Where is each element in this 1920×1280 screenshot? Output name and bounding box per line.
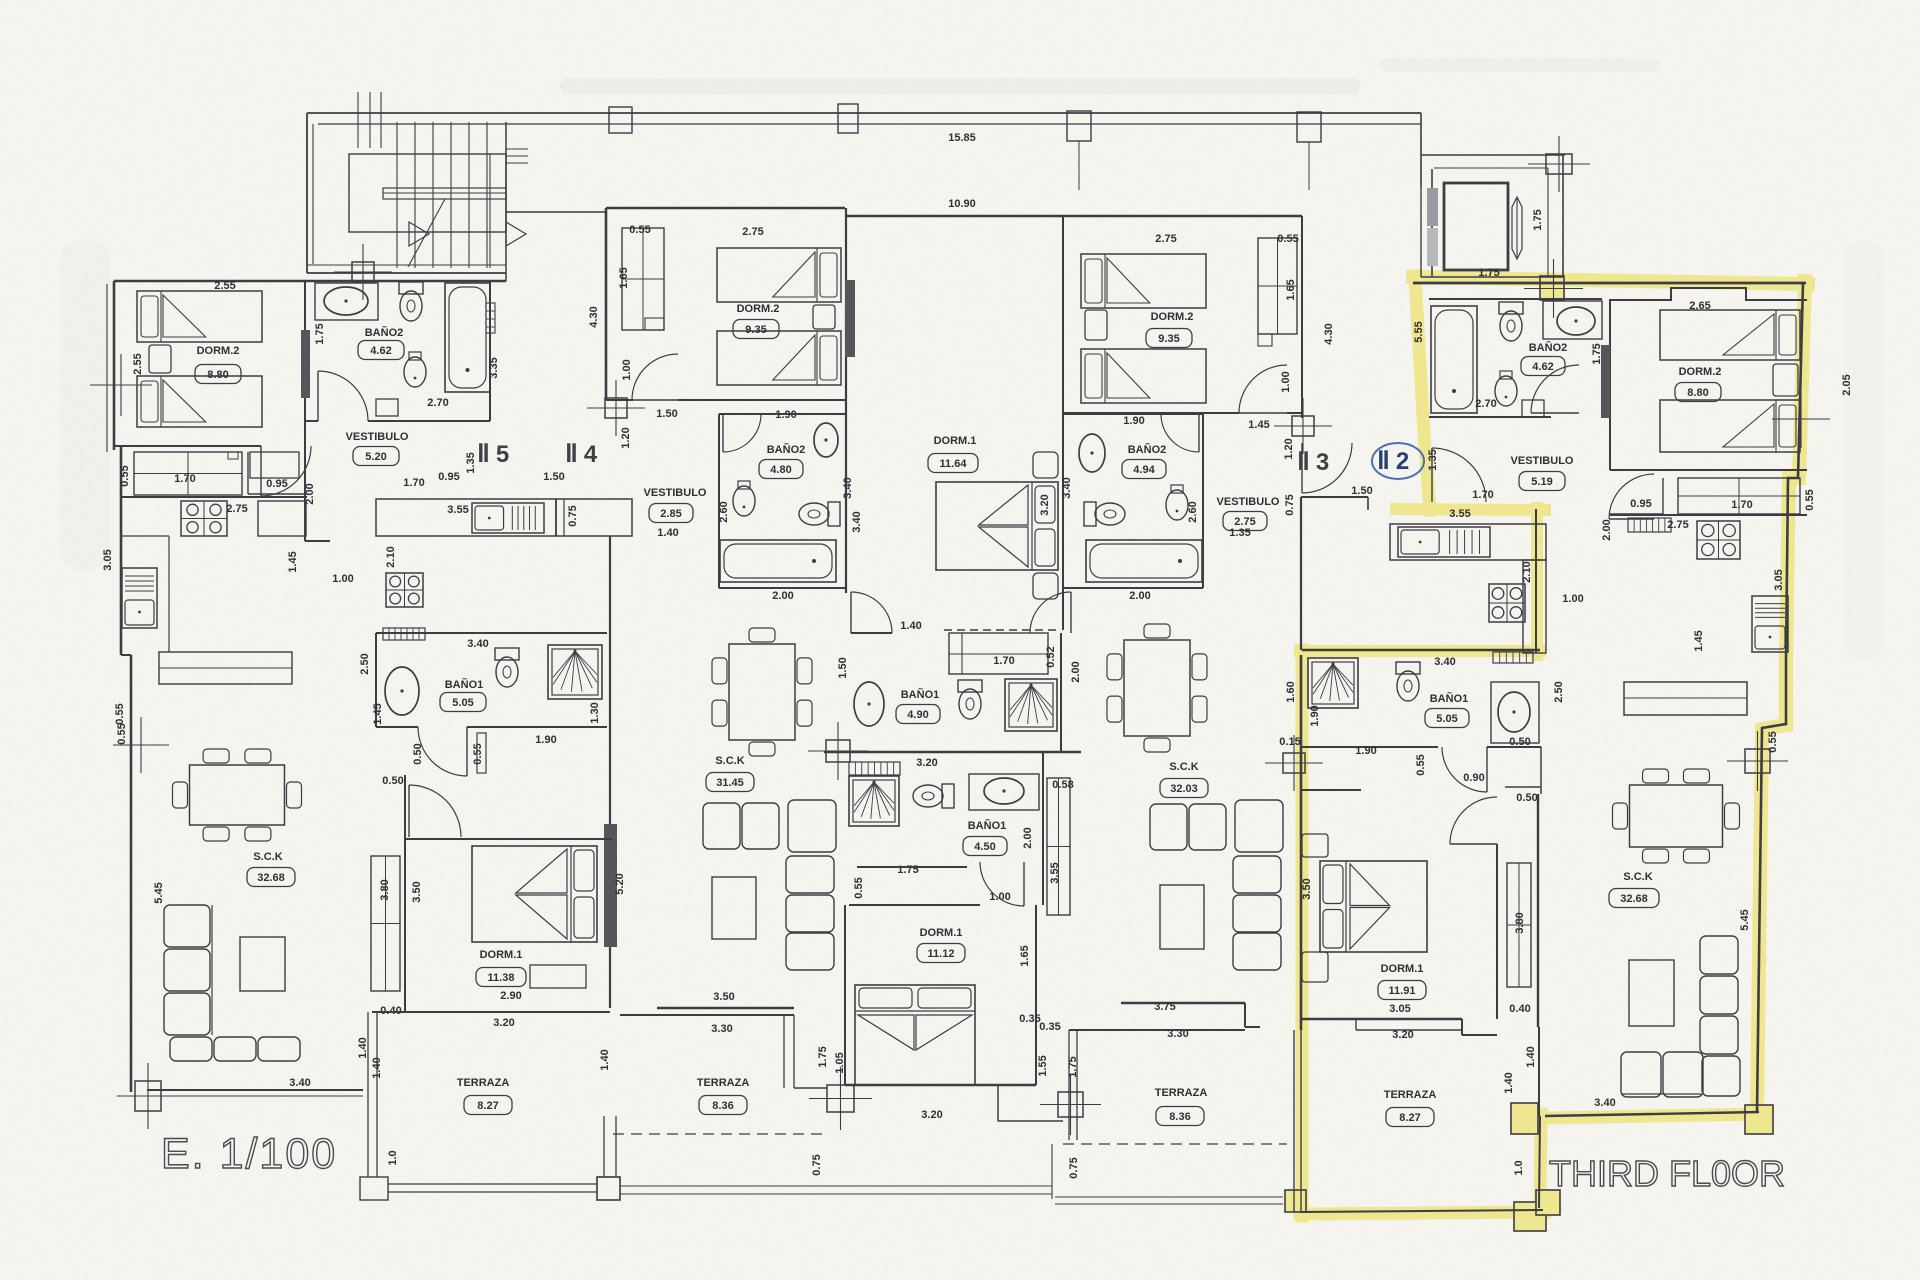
svg-text:VESTIBULO: VESTIBULO — [1217, 496, 1280, 508]
svg-text:BAÑO1: BAÑO1 — [968, 819, 1007, 832]
svg-text:0.40: 0.40 — [1509, 1003, 1530, 1015]
svg-text:1.75: 1.75 — [1532, 209, 1544, 230]
svg-text:5.05: 5.05 — [1436, 713, 1457, 725]
svg-text:DORM.1: DORM.1 — [480, 949, 523, 961]
svg-text:S.C.K: S.C.K — [253, 851, 282, 863]
svg-text:32.68: 32.68 — [1620, 893, 1648, 905]
svg-text:BAÑO2: BAÑO2 — [767, 443, 806, 456]
svg-text:3.20: 3.20 — [1039, 494, 1051, 515]
svg-text:3.40: 3.40 — [289, 1077, 310, 1089]
svg-text:1.90: 1.90 — [535, 734, 556, 746]
svg-text:3.20: 3.20 — [493, 1017, 514, 1029]
svg-text:31.45: 31.45 — [716, 777, 744, 789]
svg-text:0.55: 0.55 — [629, 224, 650, 236]
svg-text:1.70: 1.70 — [174, 473, 195, 485]
svg-text:1.70: 1.70 — [1472, 489, 1493, 501]
svg-text:1.65: 1.65 — [1285, 279, 1297, 300]
svg-text:1.70: 1.70 — [403, 477, 424, 489]
svg-text:5.55: 5.55 — [1413, 321, 1425, 342]
svg-text:TERRAZA: TERRAZA — [457, 1077, 510, 1089]
svg-text:1.40: 1.40 — [1525, 1046, 1537, 1067]
svg-text:0.55: 0.55 — [853, 877, 865, 898]
svg-text:2.90: 2.90 — [500, 990, 521, 1002]
svg-text:VESTIBULO: VESTIBULO — [346, 431, 409, 443]
svg-text:1.45: 1.45 — [1693, 630, 1705, 651]
svg-text:1.40: 1.40 — [1503, 1072, 1515, 1093]
svg-text:2.85: 2.85 — [660, 508, 681, 520]
svg-text:S.C.K: S.C.K — [1623, 871, 1652, 883]
svg-text:1.35: 1.35 — [1427, 449, 1439, 470]
svg-text:1.40: 1.40 — [371, 1057, 383, 1078]
svg-text:3.75: 3.75 — [1154, 1001, 1175, 1013]
svg-text:2: 2 — [1396, 448, 1409, 475]
svg-text:TERRAZA: TERRAZA — [1155, 1087, 1208, 1099]
svg-text:3.05: 3.05 — [1389, 1003, 1410, 1015]
svg-text:3: 3 — [1316, 449, 1329, 476]
svg-text:4: 4 — [584, 441, 598, 468]
svg-text:2.75: 2.75 — [226, 503, 247, 515]
svg-text:VESTIBULO: VESTIBULO — [644, 487, 707, 499]
svg-text:0.15: 0.15 — [1279, 736, 1300, 748]
svg-text:S.C.K: S.C.K — [715, 755, 744, 767]
svg-text:1.35: 1.35 — [1229, 527, 1250, 539]
svg-text:TERRAZA: TERRAZA — [697, 1077, 750, 1089]
svg-text:1.30: 1.30 — [589, 702, 601, 723]
svg-text:S.C.K: S.C.K — [1169, 761, 1198, 773]
svg-text:8.27: 8.27 — [1399, 1112, 1420, 1124]
svg-text:0.95: 0.95 — [1630, 498, 1651, 510]
svg-text:3.55: 3.55 — [447, 504, 468, 516]
svg-text:1.35: 1.35 — [465, 452, 477, 473]
svg-text:5.45: 5.45 — [153, 882, 165, 903]
svg-text:1.75: 1.75 — [897, 864, 918, 876]
svg-text:0.75: 0.75 — [567, 505, 579, 526]
svg-text:1.50: 1.50 — [837, 657, 849, 678]
svg-text:0.35: 0.35 — [1039, 1021, 1060, 1033]
svg-text:4.90: 4.90 — [907, 709, 928, 721]
svg-text:1.55: 1.55 — [1037, 1055, 1049, 1076]
svg-text:0.35: 0.35 — [1019, 1013, 1040, 1025]
svg-text:1.40: 1.40 — [657, 527, 678, 539]
svg-text:1.40: 1.40 — [357, 1037, 369, 1058]
svg-text:1.00: 1.00 — [1280, 371, 1292, 392]
svg-text:4.30: 4.30 — [588, 306, 600, 327]
svg-text:11.91: 11.91 — [1389, 985, 1416, 997]
svg-text:5.20: 5.20 — [614, 873, 626, 894]
svg-text:32.68: 32.68 — [257, 872, 285, 884]
svg-text:2.10: 2.10 — [1521, 561, 1533, 582]
svg-text:1.00: 1.00 — [621, 359, 633, 380]
svg-text:1.05: 1.05 — [834, 1052, 846, 1073]
svg-text:3.05: 3.05 — [1773, 569, 1785, 590]
svg-text:1.45: 1.45 — [372, 703, 384, 724]
svg-text:2.70: 2.70 — [427, 397, 448, 409]
svg-text:1.40: 1.40 — [599, 1049, 611, 1070]
svg-text:3.35: 3.35 — [488, 357, 500, 378]
svg-text:2.00: 2.00 — [1022, 827, 1034, 848]
svg-text:8.36: 8.36 — [712, 1100, 733, 1112]
svg-text:3.40: 3.40 — [842, 477, 854, 498]
svg-text:E. 1/100: E. 1/100 — [161, 1130, 337, 1178]
svg-text:3.50: 3.50 — [1301, 878, 1313, 899]
svg-text:0.75: 0.75 — [1068, 1157, 1080, 1178]
svg-text:0.50: 0.50 — [1516, 792, 1537, 804]
svg-text:5.05: 5.05 — [452, 697, 473, 709]
svg-text:3.80: 3.80 — [1514, 912, 1526, 933]
svg-text:1.90: 1.90 — [1123, 415, 1144, 427]
svg-text:4.30: 4.30 — [1323, 323, 1335, 344]
svg-text:DORM.1: DORM.1 — [934, 435, 977, 447]
svg-text:0.50: 0.50 — [412, 743, 424, 764]
svg-text:BAÑO2: BAÑO2 — [1529, 341, 1568, 354]
svg-text:4.50: 4.50 — [974, 841, 995, 853]
svg-text:3.20: 3.20 — [921, 1109, 942, 1121]
svg-text:3.30: 3.30 — [711, 1023, 732, 1035]
svg-text:9.35: 9.35 — [1158, 333, 1179, 345]
svg-text:1.0: 1.0 — [387, 1150, 399, 1165]
svg-text:1.20: 1.20 — [620, 427, 632, 448]
svg-text:BAÑO1: BAÑO1 — [445, 678, 484, 691]
svg-text:0.90: 0.90 — [1463, 772, 1484, 784]
svg-text:1.0: 1.0 — [1513, 1160, 1525, 1175]
svg-text:3.50: 3.50 — [713, 991, 734, 1003]
svg-text:2.60: 2.60 — [1187, 501, 1199, 522]
svg-text:0.95: 0.95 — [438, 471, 459, 483]
svg-text:0.55: 0.55 — [1804, 489, 1816, 510]
svg-text:0.55: 0.55 — [1277, 233, 1298, 245]
svg-text:8.80: 8.80 — [207, 369, 228, 381]
svg-text:1.50: 1.50 — [1351, 485, 1372, 497]
svg-text:1.45: 1.45 — [287, 551, 299, 572]
svg-text:TERRAZA: TERRAZA — [1384, 1089, 1437, 1101]
svg-text:0.95: 0.95 — [266, 478, 287, 490]
svg-text:5.19: 5.19 — [1531, 476, 1552, 488]
svg-text:1.70: 1.70 — [1731, 499, 1752, 511]
svg-text:1.90: 1.90 — [1355, 745, 1376, 757]
svg-text:4.94: 4.94 — [1133, 464, 1155, 476]
svg-text:2.50: 2.50 — [359, 653, 371, 674]
svg-text:DORM.2: DORM.2 — [197, 345, 240, 357]
svg-text:1.00: 1.00 — [1562, 593, 1583, 605]
svg-text:3.40: 3.40 — [1061, 477, 1073, 498]
svg-text:15.85: 15.85 — [948, 132, 976, 144]
svg-text:3.55: 3.55 — [1049, 862, 1061, 883]
svg-text:2.00: 2.00 — [1601, 519, 1613, 540]
svg-text:0.52: 0.52 — [1045, 646, 1057, 667]
svg-text:1.90: 1.90 — [1309, 705, 1321, 726]
svg-text:2.10: 2.10 — [385, 546, 397, 567]
svg-text:3.40: 3.40 — [467, 638, 488, 650]
svg-text:1.50: 1.50 — [656, 408, 677, 420]
svg-text:1.20: 1.20 — [1283, 438, 1295, 459]
svg-text:0.55: 0.55 — [116, 723, 128, 744]
svg-text:2.55: 2.55 — [132, 353, 144, 374]
svg-text:1.75: 1.75 — [1067, 1056, 1079, 1077]
svg-text:BAÑO1: BAÑO1 — [1430, 692, 1469, 705]
svg-text:BAÑO2: BAÑO2 — [365, 326, 404, 339]
svg-text:3.40: 3.40 — [851, 511, 863, 532]
svg-text:2.70: 2.70 — [1475, 398, 1496, 410]
svg-text:0.55: 0.55 — [119, 465, 131, 486]
svg-text:DORM.1: DORM.1 — [920, 927, 963, 939]
svg-text:0.55: 0.55 — [472, 743, 484, 764]
svg-text:1.40: 1.40 — [900, 620, 921, 632]
svg-text:3.05: 3.05 — [102, 549, 114, 570]
svg-text:9.35: 9.35 — [745, 324, 766, 336]
svg-text:3.40: 3.40 — [1434, 656, 1455, 668]
svg-text:4.62: 4.62 — [1532, 361, 1553, 373]
svg-text:0.50: 0.50 — [1509, 736, 1530, 748]
svg-text:2.00: 2.00 — [1070, 661, 1082, 682]
svg-text:DORM.2: DORM.2 — [737, 303, 780, 315]
svg-text:8.80: 8.80 — [1687, 387, 1708, 399]
svg-text:1.75: 1.75 — [314, 323, 326, 344]
svg-text:1.45: 1.45 — [1248, 419, 1269, 431]
svg-text:2.75: 2.75 — [742, 226, 763, 238]
svg-text:2.50: 2.50 — [1553, 681, 1565, 702]
svg-text:11.12: 11.12 — [928, 948, 955, 960]
svg-text:VESTIBULO: VESTIBULO — [1511, 455, 1574, 467]
svg-text:2.75: 2.75 — [1667, 519, 1688, 531]
svg-text:11.38: 11.38 — [488, 972, 515, 984]
svg-text:2.65: 2.65 — [1689, 300, 1710, 312]
svg-text:4.62: 4.62 — [370, 345, 391, 357]
svg-text:5.20: 5.20 — [365, 451, 386, 463]
svg-text:0.50: 0.50 — [382, 775, 403, 787]
svg-text:1.00: 1.00 — [332, 573, 353, 585]
svg-text:DORM.1: DORM.1 — [1381, 963, 1424, 975]
svg-text:3.50: 3.50 — [411, 881, 423, 902]
svg-text:5.45: 5.45 — [1739, 909, 1751, 930]
svg-text:1.75: 1.75 — [817, 1046, 829, 1067]
svg-text:8.27: 8.27 — [477, 1100, 498, 1112]
svg-text:3.20: 3.20 — [1392, 1029, 1413, 1041]
svg-text:4.80: 4.80 — [770, 464, 791, 476]
svg-text:3.40: 3.40 — [1594, 1097, 1615, 1109]
svg-text:THIRD FL0OR: THIRD FL0OR — [1549, 1153, 1785, 1194]
svg-text:32.03: 32.03 — [1170, 783, 1198, 795]
svg-text:2.55: 2.55 — [214, 280, 235, 292]
svg-text:2.60: 2.60 — [718, 501, 730, 522]
svg-text:1.70: 1.70 — [993, 655, 1014, 667]
svg-text:DORM.2: DORM.2 — [1151, 311, 1194, 323]
svg-text:8.36: 8.36 — [1169, 1111, 1190, 1123]
svg-text:3.80: 3.80 — [379, 879, 391, 900]
svg-text:2.00: 2.00 — [772, 590, 793, 602]
svg-text:1.65: 1.65 — [618, 267, 630, 288]
svg-text:0.75: 0.75 — [811, 1154, 823, 1175]
svg-text:5: 5 — [496, 441, 509, 468]
svg-text:2.05: 2.05 — [1841, 374, 1853, 395]
svg-text:10.90: 10.90 — [948, 198, 976, 210]
svg-text:1.50: 1.50 — [543, 471, 564, 483]
svg-text:0.75: 0.75 — [1284, 494, 1296, 515]
svg-text:0.55: 0.55 — [1415, 754, 1427, 775]
svg-text:11.64: 11.64 — [940, 458, 968, 470]
svg-text:2.75: 2.75 — [1155, 233, 1176, 245]
svg-text:3.55: 3.55 — [1449, 508, 1470, 520]
svg-text:DORM.2: DORM.2 — [1679, 366, 1722, 378]
svg-text:BAÑO2: BAÑO2 — [1128, 443, 1167, 456]
svg-text:0.55: 0.55 — [114, 703, 126, 724]
svg-text:3.20: 3.20 — [916, 757, 937, 769]
svg-text:2.00: 2.00 — [1129, 590, 1150, 602]
svg-text:1.60: 1.60 — [1285, 681, 1297, 702]
svg-text:BAÑO1: BAÑO1 — [901, 688, 940, 701]
svg-text:1.65: 1.65 — [1019, 945, 1031, 966]
